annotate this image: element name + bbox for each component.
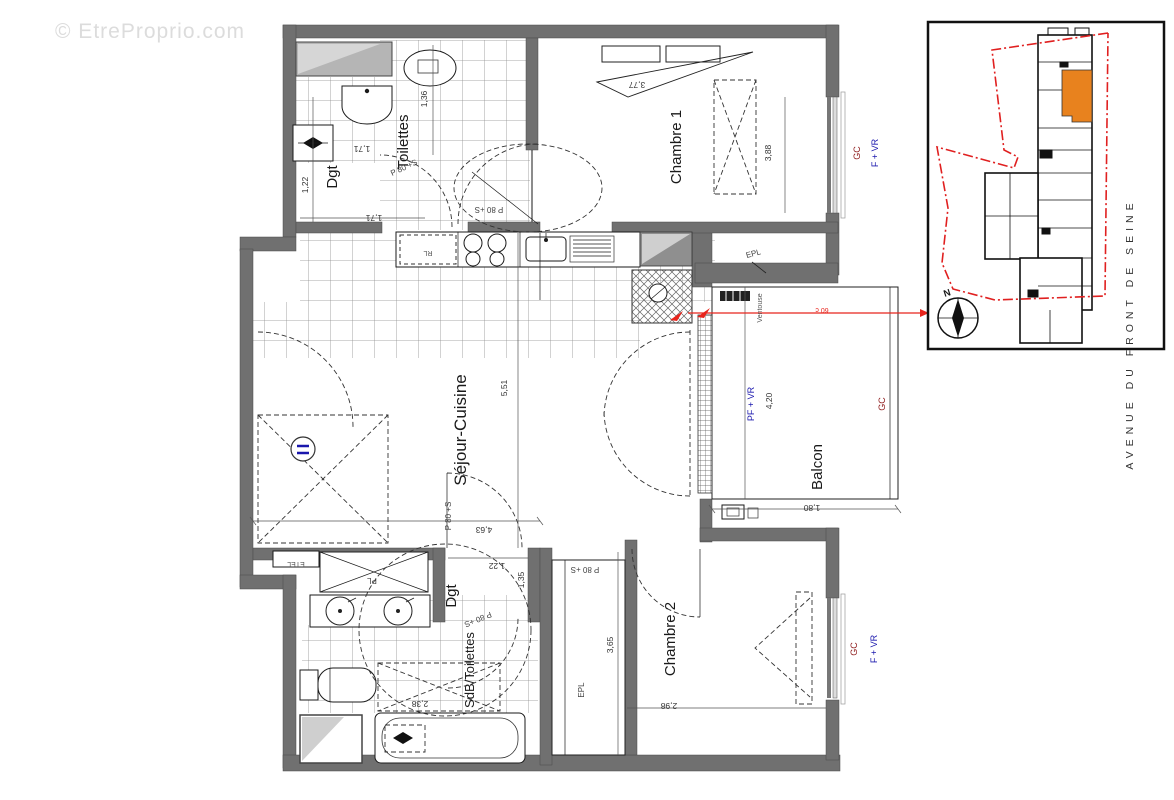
highlighted-unit: [1062, 70, 1092, 122]
label-vent-dim: 60 c: [815, 306, 829, 313]
label-pl: PL: [367, 576, 377, 585]
door-label-dgt2: P 80 +S: [444, 502, 453, 531]
dim-180: 1,80: [803, 503, 820, 513]
label-ventouse: Ventouse: [757, 293, 764, 322]
dim-377: 3,77: [628, 80, 645, 90]
ventouse-outlet-icon: [720, 291, 750, 301]
dim-463: 4,63: [475, 525, 492, 535]
north-compass-icon: [938, 298, 978, 338]
label-epl1: EPL: [745, 247, 762, 260]
toilet-icon: [404, 50, 456, 86]
window-chambre2: [827, 594, 845, 704]
double-washbasin-icon: [310, 595, 430, 627]
floorplan-drawing: © EtreProprio.com: [0, 0, 1174, 800]
toilet2-icon: [300, 668, 376, 702]
balcony-glazing: [698, 315, 712, 493]
dim-122a: 1,22: [300, 176, 310, 193]
closet-epl: [552, 560, 625, 755]
label-epl2: EPL: [577, 682, 586, 698]
corner-duct-box: [300, 715, 362, 763]
label-dgt1: Dgt: [324, 164, 341, 188]
label-etel: ETEL: [287, 560, 305, 567]
closet-pl: [320, 552, 428, 592]
dim-136: 1,36: [419, 90, 429, 107]
label-gc2: GC: [877, 397, 887, 411]
door-label-chambre2: P 80 +S: [571, 565, 600, 574]
floorplan-page: { "watermark": { "text": "© EtreProprio.…: [0, 0, 1174, 800]
label-balcon: Balcon: [809, 444, 826, 490]
dim-122b: 1,22: [488, 561, 505, 571]
label-gc3: GC: [849, 642, 859, 656]
dim-135: 1,35: [516, 571, 526, 588]
washbasin-icon: [342, 86, 392, 124]
label-gc1: GC: [852, 146, 862, 160]
label-pfvr: PF + VR: [746, 386, 756, 421]
dim-171a: 1,71: [353, 144, 370, 154]
electric-panel-symbol: [291, 437, 315, 461]
bathtub-icon: [375, 713, 525, 763]
dim-420: 4,20: [764, 392, 774, 409]
dim-238: 2,38: [411, 699, 428, 709]
dim-388: 3,88: [763, 144, 773, 161]
watermark: © EtreProprio.com: [55, 20, 245, 43]
label-rl: RL: [423, 249, 432, 256]
label-sejour: Séjour-Cuisine: [451, 374, 470, 486]
label-dgt2: Dgt: [443, 583, 460, 607]
label-fvr1: F + VR: [870, 138, 880, 167]
label-street: AVENUE DU FRONT DE SEINE: [1124, 198, 1136, 469]
dim-365: 3,65: [605, 636, 615, 653]
dim-171b: 1,71: [365, 213, 382, 223]
balcony: [698, 287, 898, 519]
label-chambre1: Chambre 1: [668, 110, 685, 184]
chambre2-items: [552, 560, 812, 755]
label-sdb: SdB/Toilettes: [462, 632, 477, 708]
dim-298: 2,98: [660, 701, 677, 711]
label-chambre2: Chambre 2: [662, 602, 679, 676]
label-fvr2: F + VR: [869, 634, 879, 663]
door-label-chambre1: P 80 +S: [475, 205, 504, 214]
window-chambre1: [827, 92, 845, 218]
dim-551: 5,51: [499, 379, 509, 396]
